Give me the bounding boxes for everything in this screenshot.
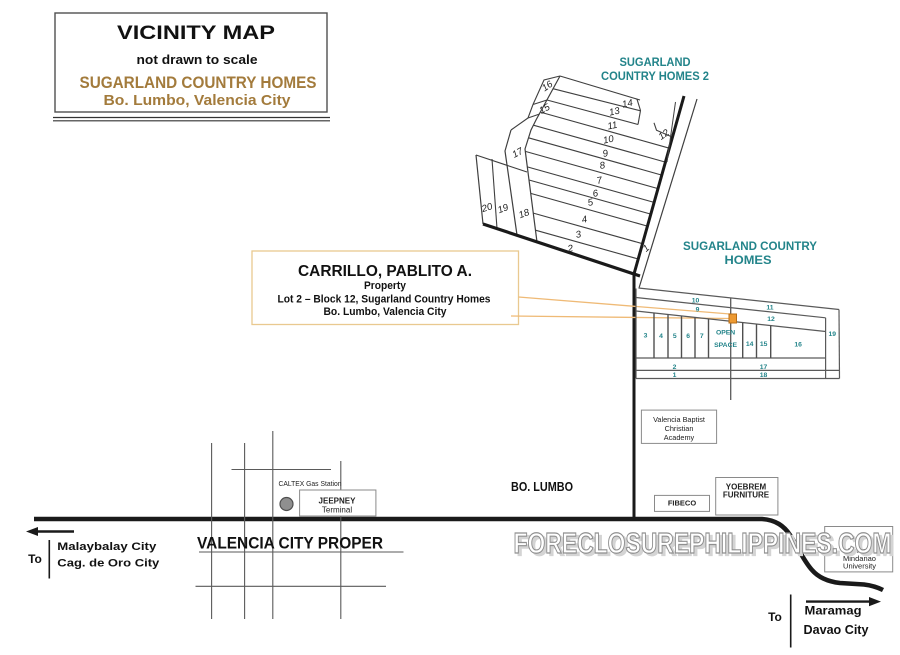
svg-text:17: 17 xyxy=(760,364,768,371)
svg-text:To: To xyxy=(28,552,42,566)
svg-text:19: 19 xyxy=(829,331,837,338)
svg-text:not drawn to scale: not drawn to scale xyxy=(137,52,258,67)
svg-text:13: 13 xyxy=(608,105,621,118)
svg-text:JEEPNEY: JEEPNEY xyxy=(319,497,357,506)
svg-text:COUNTRY HOMES 2: COUNTRY HOMES 2 xyxy=(601,69,709,83)
svg-text:SUGARLAND COUNTRY HOMES: SUGARLAND COUNTRY HOMES xyxy=(80,73,317,92)
svg-text:BO. LUMBO: BO. LUMBO xyxy=(511,480,573,494)
svg-text:3: 3 xyxy=(575,229,583,241)
svg-text:5: 5 xyxy=(673,333,677,340)
svg-text:SPACE: SPACE xyxy=(714,342,737,349)
svg-text:Bo. Lumbo, Valencia City: Bo. Lumbo, Valencia City xyxy=(324,306,448,318)
svg-text:Lot 2 – Block 12, Sugarland Co: Lot 2 – Block 12, Sugarland Country Home… xyxy=(278,294,491,306)
svg-text:7: 7 xyxy=(596,175,604,187)
svg-text:17: 17 xyxy=(511,146,526,161)
svg-text:16: 16 xyxy=(540,79,556,95)
svg-text:Maramag: Maramag xyxy=(805,604,862,618)
svg-text:OPEN: OPEN xyxy=(716,330,735,337)
svg-text:10: 10 xyxy=(602,133,615,146)
svg-text:16: 16 xyxy=(794,342,802,349)
svg-text:VICINITY MAP: VICINITY MAP xyxy=(117,23,275,44)
svg-text:3: 3 xyxy=(644,333,648,340)
svg-text:CALTEX Gas Station: CALTEX Gas Station xyxy=(279,479,342,488)
svg-text:SUGARLAND COUNTRY: SUGARLAND COUNTRY xyxy=(683,239,817,253)
svg-text:2: 2 xyxy=(673,364,677,371)
svg-text:8: 8 xyxy=(599,160,607,172)
svg-text:4: 4 xyxy=(581,214,589,226)
svg-text:Bo. Lumbo, Valencia City: Bo. Lumbo, Valencia City xyxy=(104,92,292,109)
svg-text:18: 18 xyxy=(517,207,531,221)
svg-text:6: 6 xyxy=(686,333,690,340)
svg-text:11: 11 xyxy=(766,305,773,312)
svg-text:6: 6 xyxy=(592,188,600,200)
svg-text:HOMES: HOMES xyxy=(725,253,772,267)
svg-text:CARRILLO, PABLITO A.: CARRILLO, PABLITO A. xyxy=(298,263,472,280)
svg-text:15: 15 xyxy=(760,341,768,348)
svg-text:VALENCIA CITY PROPER: VALENCIA CITY PROPER xyxy=(197,534,383,553)
svg-text:Christian: Christian xyxy=(665,424,694,433)
svg-text:Malaybalay City: Malaybalay City xyxy=(57,541,157,553)
svg-text:14: 14 xyxy=(621,98,634,111)
svg-text:Academy: Academy xyxy=(664,433,695,442)
svg-text:9: 9 xyxy=(602,148,610,160)
svg-text:SUGARLAND: SUGARLAND xyxy=(620,55,691,69)
svg-text:1: 1 xyxy=(673,372,677,379)
svg-text:19: 19 xyxy=(496,202,510,216)
svg-text:Terminal: Terminal xyxy=(322,506,352,515)
svg-text:Davao City: Davao City xyxy=(804,622,870,637)
svg-text:FURNITURE: FURNITURE xyxy=(723,491,770,500)
svg-text:FORECLOSUREPHILIPPINES.COM: FORECLOSUREPHILIPPINES.COM xyxy=(514,526,892,559)
svg-text:Property: Property xyxy=(364,280,407,292)
svg-text:FIBECO: FIBECO xyxy=(668,499,697,508)
svg-text:University: University xyxy=(843,562,876,571)
svg-text:Cag. de Oro City: Cag. de Oro City xyxy=(57,558,160,570)
svg-text:4: 4 xyxy=(659,333,663,340)
svg-text:10: 10 xyxy=(692,298,700,305)
svg-text:7: 7 xyxy=(700,333,704,340)
svg-text:9: 9 xyxy=(696,307,700,314)
svg-text:14: 14 xyxy=(746,341,754,348)
svg-text:11: 11 xyxy=(606,120,618,133)
svg-text:12: 12 xyxy=(767,316,775,323)
svg-text:Valencia Baptist: Valencia Baptist xyxy=(653,415,705,424)
svg-text:18: 18 xyxy=(760,372,768,379)
svg-text:To: To xyxy=(768,610,782,624)
